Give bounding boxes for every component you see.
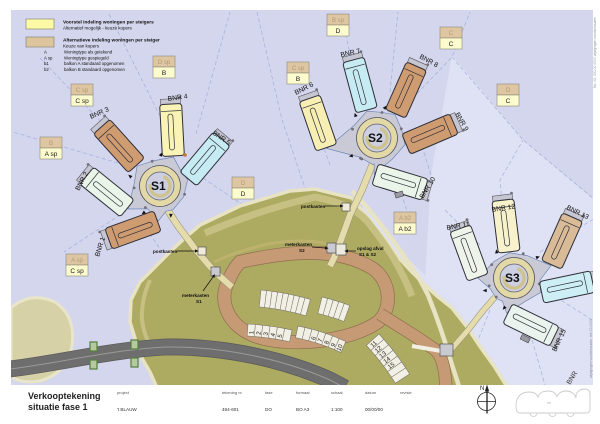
svg-text:S2: S2 <box>299 248 305 253</box>
svg-text:S1: S1 <box>151 179 166 193</box>
svg-text:C: C <box>449 41 454 48</box>
svg-text:balkon B standaard opgenomen: balkon B standaard opgenomen <box>64 67 126 72</box>
svg-text:balkon A standaard opgenomen: balkon A standaard opgenomen <box>64 61 125 66</box>
svg-text:B sp: B sp <box>332 18 345 24</box>
svg-text:00/00/00: 00/00/00 <box>365 407 383 412</box>
svg-text:b1: b1 <box>44 61 49 66</box>
svg-text:D: D <box>506 88 511 94</box>
svg-text:A b2: A b2 <box>398 226 411 233</box>
svg-text:'t BLAUW: 't BLAUW <box>117 407 137 412</box>
svg-text:postkasten: postkasten <box>301 204 325 209</box>
svg-text:A: A <box>44 50 47 55</box>
svg-text:fase: fase <box>265 390 273 395</box>
svg-text:A sp: A sp <box>44 55 53 60</box>
svg-text:Alternatief mogelijk - keuze: Alternatief mogelijk - keuze kopers <box>63 26 133 31</box>
svg-text:wijzigingen voorbehouden, tek: wijzigingen voorbehouden, tek 00-0000 <box>589 319 593 378</box>
svg-text:B: B <box>49 141 53 147</box>
svg-text:1:100: 1:100 <box>331 407 343 412</box>
svg-text:S1: S1 <box>196 299 202 304</box>
svg-text:484-601: 484-601 <box>222 407 239 412</box>
svg-text:datum: datum <box>365 390 377 395</box>
svg-text:D: D <box>241 191 246 198</box>
svg-text:formaat: formaat <box>296 390 310 395</box>
svg-text:C sp: C sp <box>76 88 89 94</box>
svg-text:A b2: A b2 <box>399 216 412 222</box>
svg-text:revisie: revisie <box>400 390 412 395</box>
svg-text:B: B <box>162 70 166 77</box>
svg-text:S2: S2 <box>368 131 383 145</box>
svg-text:BO A3: BO A3 <box>296 407 310 412</box>
svg-text:meterkasten: meterkasten <box>285 242 312 247</box>
svg-text:Woningtype gespiegeld: Woningtype gespiegeld <box>64 55 109 60</box>
svg-text:S3: S3 <box>505 271 520 285</box>
svg-text:Woningtype als getekend: Woningtype als getekend <box>64 50 113 55</box>
svg-text:situatie fase 1: situatie fase 1 <box>28 402 88 412</box>
svg-text:Verkooptekening: Verkooptekening <box>28 391 101 401</box>
svg-text:C sp: C sp <box>70 268 84 275</box>
svg-text:DO: DO <box>265 407 272 412</box>
svg-text:meterkasten: meterkasten <box>182 293 209 298</box>
svg-text:b2: b2 <box>44 67 49 72</box>
svg-text:C: C <box>449 31 454 37</box>
svg-text:C sp: C sp <box>292 66 305 72</box>
svg-text:C sp: C sp <box>75 98 89 105</box>
svg-text:project: project <box>117 390 130 395</box>
svg-text:schaal: schaal <box>331 390 343 395</box>
svg-text:Keuze van kopers: Keuze van kopers <box>63 44 100 49</box>
svg-text:tekening nr: tekening nr <box>222 390 242 395</box>
svg-text:C: C <box>506 98 511 105</box>
svg-text:D: D <box>241 181 246 187</box>
svg-text:A sp: A sp <box>71 258 83 264</box>
svg-text:opslag afval: opslag afval <box>357 246 384 251</box>
svg-text:B: B <box>296 76 300 83</box>
svg-text:N: N <box>480 386 484 392</box>
svg-text:D: D <box>336 28 341 35</box>
svg-text:A sp: A sp <box>45 151 58 158</box>
svg-text:No. 02, 000-00 0000 wijziginge: No. 02, 000-00 0000 wijzigingen voorbeho… <box>593 17 597 88</box>
svg-text:postkasten: postkasten <box>153 249 177 254</box>
svg-text:S1 & S2: S1 & S2 <box>359 252 377 257</box>
svg-text:D sp: D sp <box>158 60 171 66</box>
